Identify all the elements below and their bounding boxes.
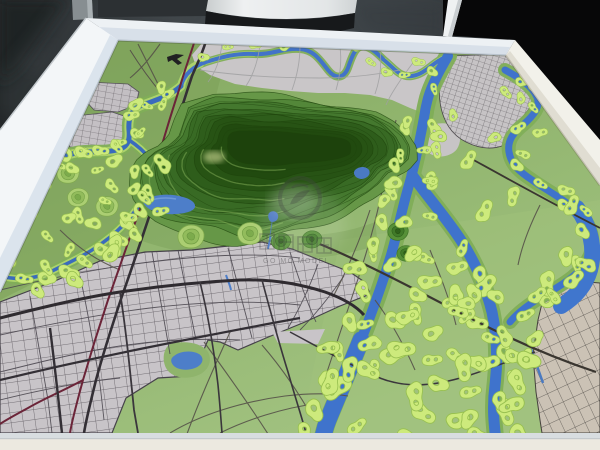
svg-text:GO MC MODEL: GO MC MODEL [263,258,330,265]
